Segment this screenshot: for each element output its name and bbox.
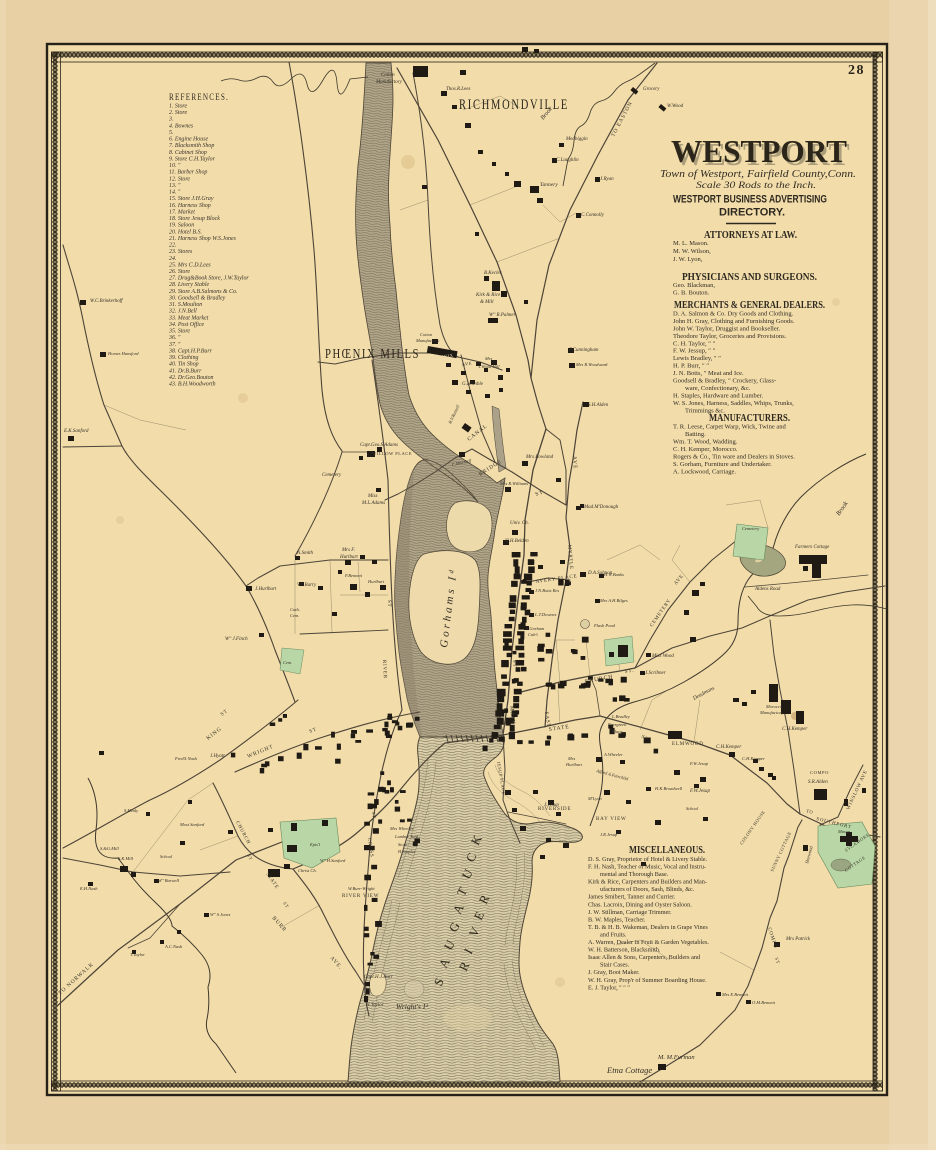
svg-text:N.Smith: N.Smith: [296, 551, 313, 556]
svg-text:L.Bradley: L.Bradley: [611, 714, 630, 719]
svg-text:DIRECTORY.: DIRECTORY.: [719, 207, 785, 219]
svg-text:Mrs: Mrs: [484, 356, 492, 361]
svg-text:Cabʹt: Cabʹt: [528, 632, 538, 637]
svg-text:J. N. Botts, ″: J. N. Botts, ″ Meat and Ice.: [673, 370, 744, 377]
svg-text:S.Healy: S.Healy: [124, 808, 138, 813]
svg-text:J.Ryan: J.Ryan: [600, 177, 614, 182]
svg-text:BAY VIEW: BAY VIEW: [596, 817, 627, 822]
svg-text:MERCHANTS & GENERAL DEALERS.: MERCHANTS & GENERAL DEALERS.: [674, 300, 825, 311]
svg-text:COMPO: COMPO: [810, 770, 829, 775]
svg-text:22.: 22.: [169, 243, 176, 249]
svg-text:24.: 24.: [169, 256, 176, 262]
svg-text:S.H.Alden: S.H.Alden: [588, 403, 609, 408]
svg-text:Hurlburt: Hurlburt: [565, 762, 583, 767]
svg-text:29. Store A.B.Salmons & Co.: 29. Store A.B.Salmons & Co.: [169, 289, 237, 295]
svg-text:W.C.Brinkerhoff: W.C.Brinkerhoff: [90, 299, 123, 304]
svg-text:M. L. Mason.: M. L. Mason.: [673, 240, 709, 247]
svg-text:Store: Store: [398, 842, 407, 847]
svg-text:Homes Hansford: Homes Hansford: [107, 351, 139, 356]
svg-text:M. W. Wilson,: M. W. Wilson,: [673, 248, 711, 255]
svg-text:School: School: [160, 854, 173, 859]
svg-text:9. Store C.H.Taylor: 9. Store C.H.Taylor: [169, 157, 216, 163]
svg-text:Wʹʹ H.Sanford: Wʹʹ H.Sanford: [320, 858, 346, 863]
svg-text:Evergreen: Evergreen: [607, 722, 627, 727]
svg-text:Manufactory: Manufactory: [759, 710, 783, 715]
svg-text:8. Cabinet Shop: 8. Cabinet Shop: [169, 150, 207, 156]
svg-text:Christ Ch.: Christ Ch.: [298, 868, 317, 873]
svg-text:Kirk & Rice: Kirk & Rice: [475, 293, 501, 298]
svg-text:J. Gray, Boot Maker.: J. Gray, Boot Maker.: [588, 969, 640, 976]
svg-text:W. H. Batterson, Blacksmith.: W. H. Batterson, Blacksmith.: [588, 947, 661, 954]
svg-text:C.Connolly: C.Connolly: [581, 213, 605, 218]
svg-text:RIVER: RIVER: [381, 660, 387, 679]
svg-text:30. Goodsell & Bradley: 30. Goodsell & Bradley: [168, 296, 226, 302]
svg-text:Thos.R.Lees: Thos.R.Lees: [446, 87, 471, 92]
svg-text:mental and Thorough Base.: mental and Thorough Base.: [600, 871, 669, 878]
svg-text:Wright's Iᵈ: Wright's Iᵈ: [396, 1002, 428, 1011]
svg-text:6. Engine House: 6. Engine House: [169, 137, 208, 143]
svg-text:J. W. Lyon,: J. W. Lyon,: [673, 256, 703, 263]
svg-text:13. ″: 13. ″: [169, 183, 181, 189]
svg-text:H.K.Broadwell: H.K.Broadwell: [654, 786, 683, 791]
svg-text:B. W. Maples, Teacher.: B. W. Maples, Teacher.: [588, 916, 646, 923]
svg-text:E.K.Sanford: E.K.Sanford: [63, 429, 89, 434]
svg-text:Flash Pond: Flash Pond: [593, 623, 616, 628]
svg-text:Mrs Wheeler: Mrs Wheeler: [389, 826, 414, 831]
svg-text:H.Staples: H.Staples: [397, 849, 416, 854]
svg-text:3.: 3.: [168, 117, 173, 123]
svg-text:40. Tin Shop: 40. Tin Shop: [169, 362, 199, 368]
svg-text:F. W. Jessup, ″: F. W. Jessup, ″ ″: [673, 348, 716, 355]
svg-text:Geo. Blackman,: Geo. Blackman,: [673, 282, 715, 289]
svg-text:G.Ishinble: G.Ishinble: [462, 382, 484, 387]
svg-text:25. Mrs C.D.Lees: 25. Mrs C.D.Lees: [169, 262, 211, 268]
svg-text:Mrs F.: Mrs F.: [341, 548, 355, 553]
svg-text:E.H.Nash: E.H.Nash: [79, 886, 98, 891]
svg-text:Univ. Ch.: Univ. Ch.: [510, 521, 529, 526]
svg-text:19. Saloon: 19. Saloon: [169, 223, 194, 229]
svg-text:J.Hyatt: J.Hyatt: [210, 754, 225, 759]
svg-text:27. Drug&Book Store, J.W.Taylo: 27. Drug&Book Store, J.W.Taylor: [169, 276, 249, 282]
svg-text:33. Meat Market: 33. Meat Market: [168, 315, 209, 321]
svg-text:Chas. Lacroix, Dining and Oyst: Chas. Lacroix, Dining and Oyster Saloon.: [588, 901, 692, 908]
svg-text:REFERENCES.: REFERENCES.: [169, 93, 229, 103]
svg-text:Capt.Geo.S.Adams: Capt.Geo.S.Adams: [360, 443, 398, 448]
svg-text:D. A. Salmon & Co. Dry Goods a: D. A. Salmon & Co. Dry Goods and Clothin…: [673, 311, 794, 318]
svg-text:James Smibert, Tanner and Curr: James Smibert, Tanner and Currier.: [588, 894, 676, 901]
svg-text:Aldens Road: Aldens Road: [754, 587, 781, 592]
svg-text:C.H.Kemper: C.H.Kemper: [782, 727, 807, 732]
svg-text:MISCELLANEOUS.: MISCELLANEOUS.: [629, 845, 705, 856]
svg-text:John W. Taylor, Druggist and B: John W. Taylor, Druggist and Bookseller.: [673, 325, 781, 332]
svg-text:A.Wheeler: A.Wheeler: [603, 752, 623, 757]
svg-text:32. J.N.Bell: 32. J.N.Bell: [168, 309, 197, 315]
svg-text:38. Capt.H.P.Burr: 38. Capt.H.P.Burr: [168, 348, 213, 354]
svg-text:E. J. Taylor, ″: E. J. Taylor, ″ ″ ″: [588, 984, 630, 991]
svg-text:7. Blacksmith Shop: 7. Blacksmith Shop: [169, 143, 214, 149]
svg-text:P.Cunningham: P.Cunningham: [568, 348, 599, 353]
svg-text:Cem.: Cem.: [283, 660, 292, 665]
svg-text:Manufactory: Manufactory: [375, 80, 403, 85]
svg-text:C. H. Kemper, Morocco.: C. H. Kemper, Morocco.: [673, 446, 738, 453]
svg-text:34. Post Office: 34. Post Office: [168, 321, 205, 328]
svg-text:Town of Westport, Fairfield Co: Town of Westport, Fairfield County,Conn.: [660, 169, 856, 180]
svg-text:C. H. Taylor, ″: C. H. Taylor, ″ ″: [673, 340, 716, 347]
svg-text:Place: Place: [611, 729, 622, 734]
svg-text:F.Bennett: F.Bennett: [344, 573, 363, 578]
svg-text:Lumber Yard: Lumber Yard: [394, 834, 419, 839]
svg-text:ware, Confectionary, &c.: ware, Confectionary, &c.: [685, 385, 751, 392]
svg-text:H.W.Banks: H.W.Banks: [603, 572, 624, 577]
svg-text:ELMWOOD: ELMWOOD: [672, 742, 704, 747]
svg-text:28. Livery Stable: 28. Livery Stable: [169, 282, 209, 288]
svg-text:15. Store J.H.Gray: 15. Store J.H.Gray: [169, 196, 214, 202]
svg-text:Theodore Taylor, Groceries and: Theodore Taylor, Groceries and Provision…: [673, 333, 787, 340]
svg-text:C.Laughlin: C.Laughlin: [556, 158, 579, 163]
svg-text:Cotton: Cotton: [381, 73, 395, 78]
svg-text:42. Dr.Geo.Bouton: 42. Dr.Geo.Bouton: [169, 375, 214, 381]
svg-text:Mrs Patrick: Mrs Patrick: [785, 937, 811, 942]
svg-text:28: 28: [848, 63, 865, 78]
svg-text:T.Taylor: T.Taylor: [130, 952, 145, 957]
svg-text:35. Store: 35. Store: [168, 329, 190, 335]
svg-text:4. Bownes: 4. Bownes: [169, 123, 194, 129]
svg-text:C.H.Kemper: C.H.Kemper: [742, 756, 765, 761]
svg-text:Mrs Rowland: Mrs Rowland: [525, 455, 554, 460]
svg-text:PHŒNIX MILLS: PHŒNIX MILLS: [325, 347, 420, 362]
svg-text:A. Lockwood, Carriage.: A. Lockwood, Carriage.: [673, 469, 736, 476]
svg-text:and Fruits.: and Fruits.: [600, 932, 627, 939]
svg-text:31. S.Moulton: 31. S.Moulton: [168, 302, 202, 308]
svg-text:20. Hotel B.S.: 20. Hotel B.S.: [169, 229, 202, 235]
svg-text:MʹLyon: MʹLyon: [587, 796, 602, 801]
svg-text:F. H. Nash, Teacher of Music,: F. H. Nash, Teacher of Music, Vocal and …: [588, 864, 706, 871]
svg-text:Stair Cases.: Stair Cases.: [600, 962, 630, 969]
svg-text:Cem.: Cem.: [290, 613, 299, 618]
svg-text:C.H.Kemper: C.H.Kemper: [716, 745, 741, 750]
svg-text:Fredʹk Nash: Fredʹk Nash: [174, 756, 198, 761]
svg-text:M. M.Furman: M. M.Furman: [657, 1054, 695, 1061]
svg-text:Farmers Cottage: Farmers Cottage: [794, 545, 830, 550]
svg-text:W. S. Jones, Harness, Saddles,: W. S. Jones, Harness, Saddles, Whips, Tr…: [673, 400, 794, 407]
svg-text:D. S. Gray, Proprietor of Hote: D. S. Gray, Proprietor of Hotel & Livery…: [588, 856, 708, 863]
svg-text:S. Gorham, Furniture and Under: S. Gorham, Furniture and Undertaker.: [673, 461, 772, 468]
svg-text:Mrs R.Williams: Mrs R.Williams: [499, 481, 528, 486]
svg-text:43. B.H.Woodworth: 43. B.H.Woodworth: [169, 382, 216, 388]
svg-text:J.R.Jesup: J.R.Jesup: [600, 832, 618, 837]
svg-text:Hurlburt: Hurlburt: [367, 579, 385, 584]
svg-text:Lewis Bradley, ″: Lewis Bradley, ″ ″: [673, 355, 721, 362]
svg-text:5.: 5.: [169, 130, 173, 136]
svg-text:RIVER VIEW: RIVER VIEW: [342, 894, 379, 899]
svg-text:Most Sanford: Most Sanford: [179, 822, 205, 827]
svg-text:T.Wood Hill: T.Wood Hill: [478, 364, 500, 369]
svg-text:Cath.: Cath.: [290, 607, 300, 612]
svg-text:ATTORNEYS AT LAW.: ATTORNEYS AT LAW.: [704, 230, 797, 241]
svg-text:Wʹʹ R.Palmer: Wʹʹ R.Palmer: [489, 313, 516, 318]
svg-text:F.W.Jesup: F.W.Jesup: [689, 761, 709, 766]
svg-text:Wʹʹ Barry: Wʹʹ Barry: [297, 583, 317, 588]
svg-text:W.Burr-Wright: W.Burr-Wright: [348, 886, 375, 891]
svg-text:17. Market: 17. Market: [169, 209, 195, 215]
svg-text:S.R.Alden: S.R.Alden: [808, 780, 828, 785]
svg-text:Rogers & Co., Tin ware and Dea: Rogers & Co., Tin ware and Dealers in St…: [673, 454, 795, 461]
svg-text:ST: ST: [386, 600, 391, 608]
svg-text:10. ″: 10. ″: [169, 163, 181, 169]
svg-text:14. ″: 14. ″: [169, 190, 181, 196]
svg-text:ufacturers of Doors, Sash, Bl: ufacturers of Doors, Sash, Blinds, &c.: [600, 886, 695, 893]
svg-text:T. B. & H. B. Wakeman, Dealers: T. B. & H. B. Wakeman, Dealers in Grape …: [588, 924, 708, 931]
svg-text:Medbiggin: Medbiggin: [565, 137, 588, 142]
svg-text:J.Hurlburt: J.Hurlburt: [255, 587, 277, 592]
svg-text:16. Harness Shop: 16. Harness Shop: [169, 203, 211, 209]
svg-text:F.W.Jesup: F.W.Jesup: [689, 789, 711, 794]
svg-text:Scale 30 Rods to the Inch.: Scale 30 Rods to the Inch.: [696, 181, 816, 191]
svg-text:T. R. Leese, Carpet Warp, W: T. R. Leese, Carpet Warp, Wick, Twine an…: [673, 424, 786, 431]
svg-text:2. Store: 2. Store: [169, 110, 187, 116]
svg-text:H. P. Burr, ″: H. P. Burr, ″ ″: [673, 363, 709, 370]
svg-text:Mrs: Mrs: [567, 756, 575, 761]
svg-text:Tannery: Tannery: [540, 182, 558, 188]
svg-text:Kirk & Rice, Carpenters and Bu: Kirk & Rice, Carpenters and Builders and…: [588, 879, 707, 886]
svg-text:H.H.Belden: H.H.Belden: [504, 539, 529, 544]
svg-text:12. Store: 12. Store: [169, 176, 190, 182]
svg-text:ST: ST: [371, 811, 377, 818]
svg-text:G. B. Bouton.: G. B. Bouton.: [673, 290, 710, 297]
svg-text:1. Store: 1. Store: [169, 104, 187, 110]
svg-text:B.Kecler: B.Kecler: [484, 271, 502, 276]
svg-text:A.C.Nash: A.C.Nash: [164, 944, 183, 949]
svg-text:Mrs E.Bennett: Mrs E.Bennett: [721, 992, 749, 997]
svg-text:Mad.MʹDonough: Mad.MʹDonough: [583, 505, 619, 510]
svg-text:Mrs A.H.Bilges: Mrs A.H.Bilges: [599, 598, 628, 603]
svg-text:Wʹʹ S.Jones: Wʹʹ S.Jones: [210, 912, 231, 917]
svg-text:A. Warren, Dealer in Fruit & G: A. Warren, Dealer in Fruit & Garden Vege…: [588, 939, 709, 946]
svg-text:41. Dr.B.Burr: 41. Dr.B.Burr: [169, 368, 202, 374]
svg-text:S.K.Mill: S.K.Mill: [118, 856, 134, 861]
svg-text:AVE: AVE: [571, 456, 578, 470]
svg-text:36. ″: 36. ″: [168, 335, 181, 341]
svg-text:Miss Wood: Miss Wood: [651, 654, 674, 659]
svg-text:Cotton: Cotton: [420, 332, 433, 337]
svg-text:ST: ST: [511, 660, 517, 668]
svg-text:Wm. T. Wood, Wadding.: Wm. T. Wood, Wadding.: [673, 439, 738, 446]
svg-text:& Mill: & Mill: [480, 300, 494, 305]
svg-text:John H. Gray, Clothing and Fur: John H. Gray, Clothing and Furnishing Go…: [673, 318, 795, 325]
svg-text:O.M.Bennett: O.M.Bennett: [752, 1000, 776, 1005]
svg-text:Miss: Miss: [367, 494, 378, 499]
svg-text:21. Harness Shop W.S.Jones: 21. Harness Shop W.S.Jones: [169, 236, 237, 242]
svg-text:J.N.Botts Res: J.N.Botts Res: [535, 588, 559, 593]
svg-text:Goodsell & Bradley, ″ Cro: Goodsell & Bradley, ″ Crockery, Glass-: [673, 378, 776, 385]
svg-text:23. Stores: 23. Stores: [169, 249, 193, 255]
svg-text:L.T.Downes: L.T.Downes: [534, 612, 557, 617]
svg-text:39. Clothing: 39. Clothing: [168, 355, 199, 361]
svg-text:37. ″: 37. ″: [168, 342, 181, 348]
svg-text:WESTPORT: WESTPORT: [671, 133, 847, 169]
svg-text:Grocery: Grocery: [643, 87, 660, 92]
svg-text:Mrs R.Woodward: Mrs R.Woodward: [575, 362, 608, 367]
svg-text:H. Staples, Hardware and Lumb: H. Staples, Hardware and Lumber.: [673, 392, 763, 399]
svg-text:School: School: [686, 806, 699, 811]
svg-text:S.&G.Mill: S.&G.Mill: [100, 846, 119, 851]
svg-text:Capt.H.J.Burr: Capt.H.J.Burr: [364, 975, 393, 980]
svg-text:Wʹʹ Burwell: Wʹʹ Burwell: [158, 878, 180, 883]
svg-text:Manufactory: Manufactory: [415, 338, 439, 343]
svg-text:J.Jesup: J.Jesup: [544, 803, 559, 808]
svg-text:W. H. Gray, Prop'r of Summer B: W. H. Gray, Prop'r of Summer Boarding Ho…: [588, 977, 707, 984]
svg-text:Cemetery: Cemetery: [322, 473, 342, 478]
svg-text:Wʹʹ J.Finch: Wʹʹ J.Finch: [225, 637, 248, 642]
svg-text:J. W. Stillman, Carriage Trimm: J. W. Stillman, Carriage Trimmer.: [588, 909, 672, 916]
svg-text:18. Store Jesup Block: 18. Store Jesup Block: [169, 216, 220, 222]
svg-text:Episʹl: Episʹl: [309, 842, 321, 847]
svg-text:H.Taylor: H.Taylor: [365, 1003, 384, 1008]
svg-text:Batting.: Batting.: [685, 431, 706, 438]
svg-text:11. Barber Shop: 11. Barber Shop: [169, 170, 207, 176]
svg-text:WILLOW PLACE: WILLOW PLACE: [372, 451, 412, 456]
svg-text:Hurlburt: Hurlburt: [339, 555, 358, 560]
svg-text:W.Wood: W.Wood: [667, 104, 684, 109]
svg-text:Isaac Allen & Sons, Carpent: Isaac Allen & Sons, Carpenters, Builders…: [588, 954, 701, 961]
svg-text:Etna Cottage: Etna Cottage: [606, 1065, 652, 1075]
svg-text:S.Gorham: S.Gorham: [526, 626, 545, 631]
svg-text:Cemetery: Cemetery: [742, 526, 759, 531]
svg-text:MANUFACTURERS.: MANUFACTURERS.: [709, 413, 790, 424]
svg-text:M.L.Adams: M.L.Adams: [361, 501, 385, 506]
svg-text:WESTPORT BUSINESS ADVERTISING: WESTPORT BUSINESS ADVERTISING: [673, 194, 827, 206]
svg-text:26. Store: 26. Store: [169, 269, 190, 275]
svg-text:Mason: Mason: [837, 829, 851, 834]
svg-text:J.Scribner: J.Scribner: [645, 671, 666, 676]
svg-text:Morocco: Morocco: [765, 704, 783, 709]
